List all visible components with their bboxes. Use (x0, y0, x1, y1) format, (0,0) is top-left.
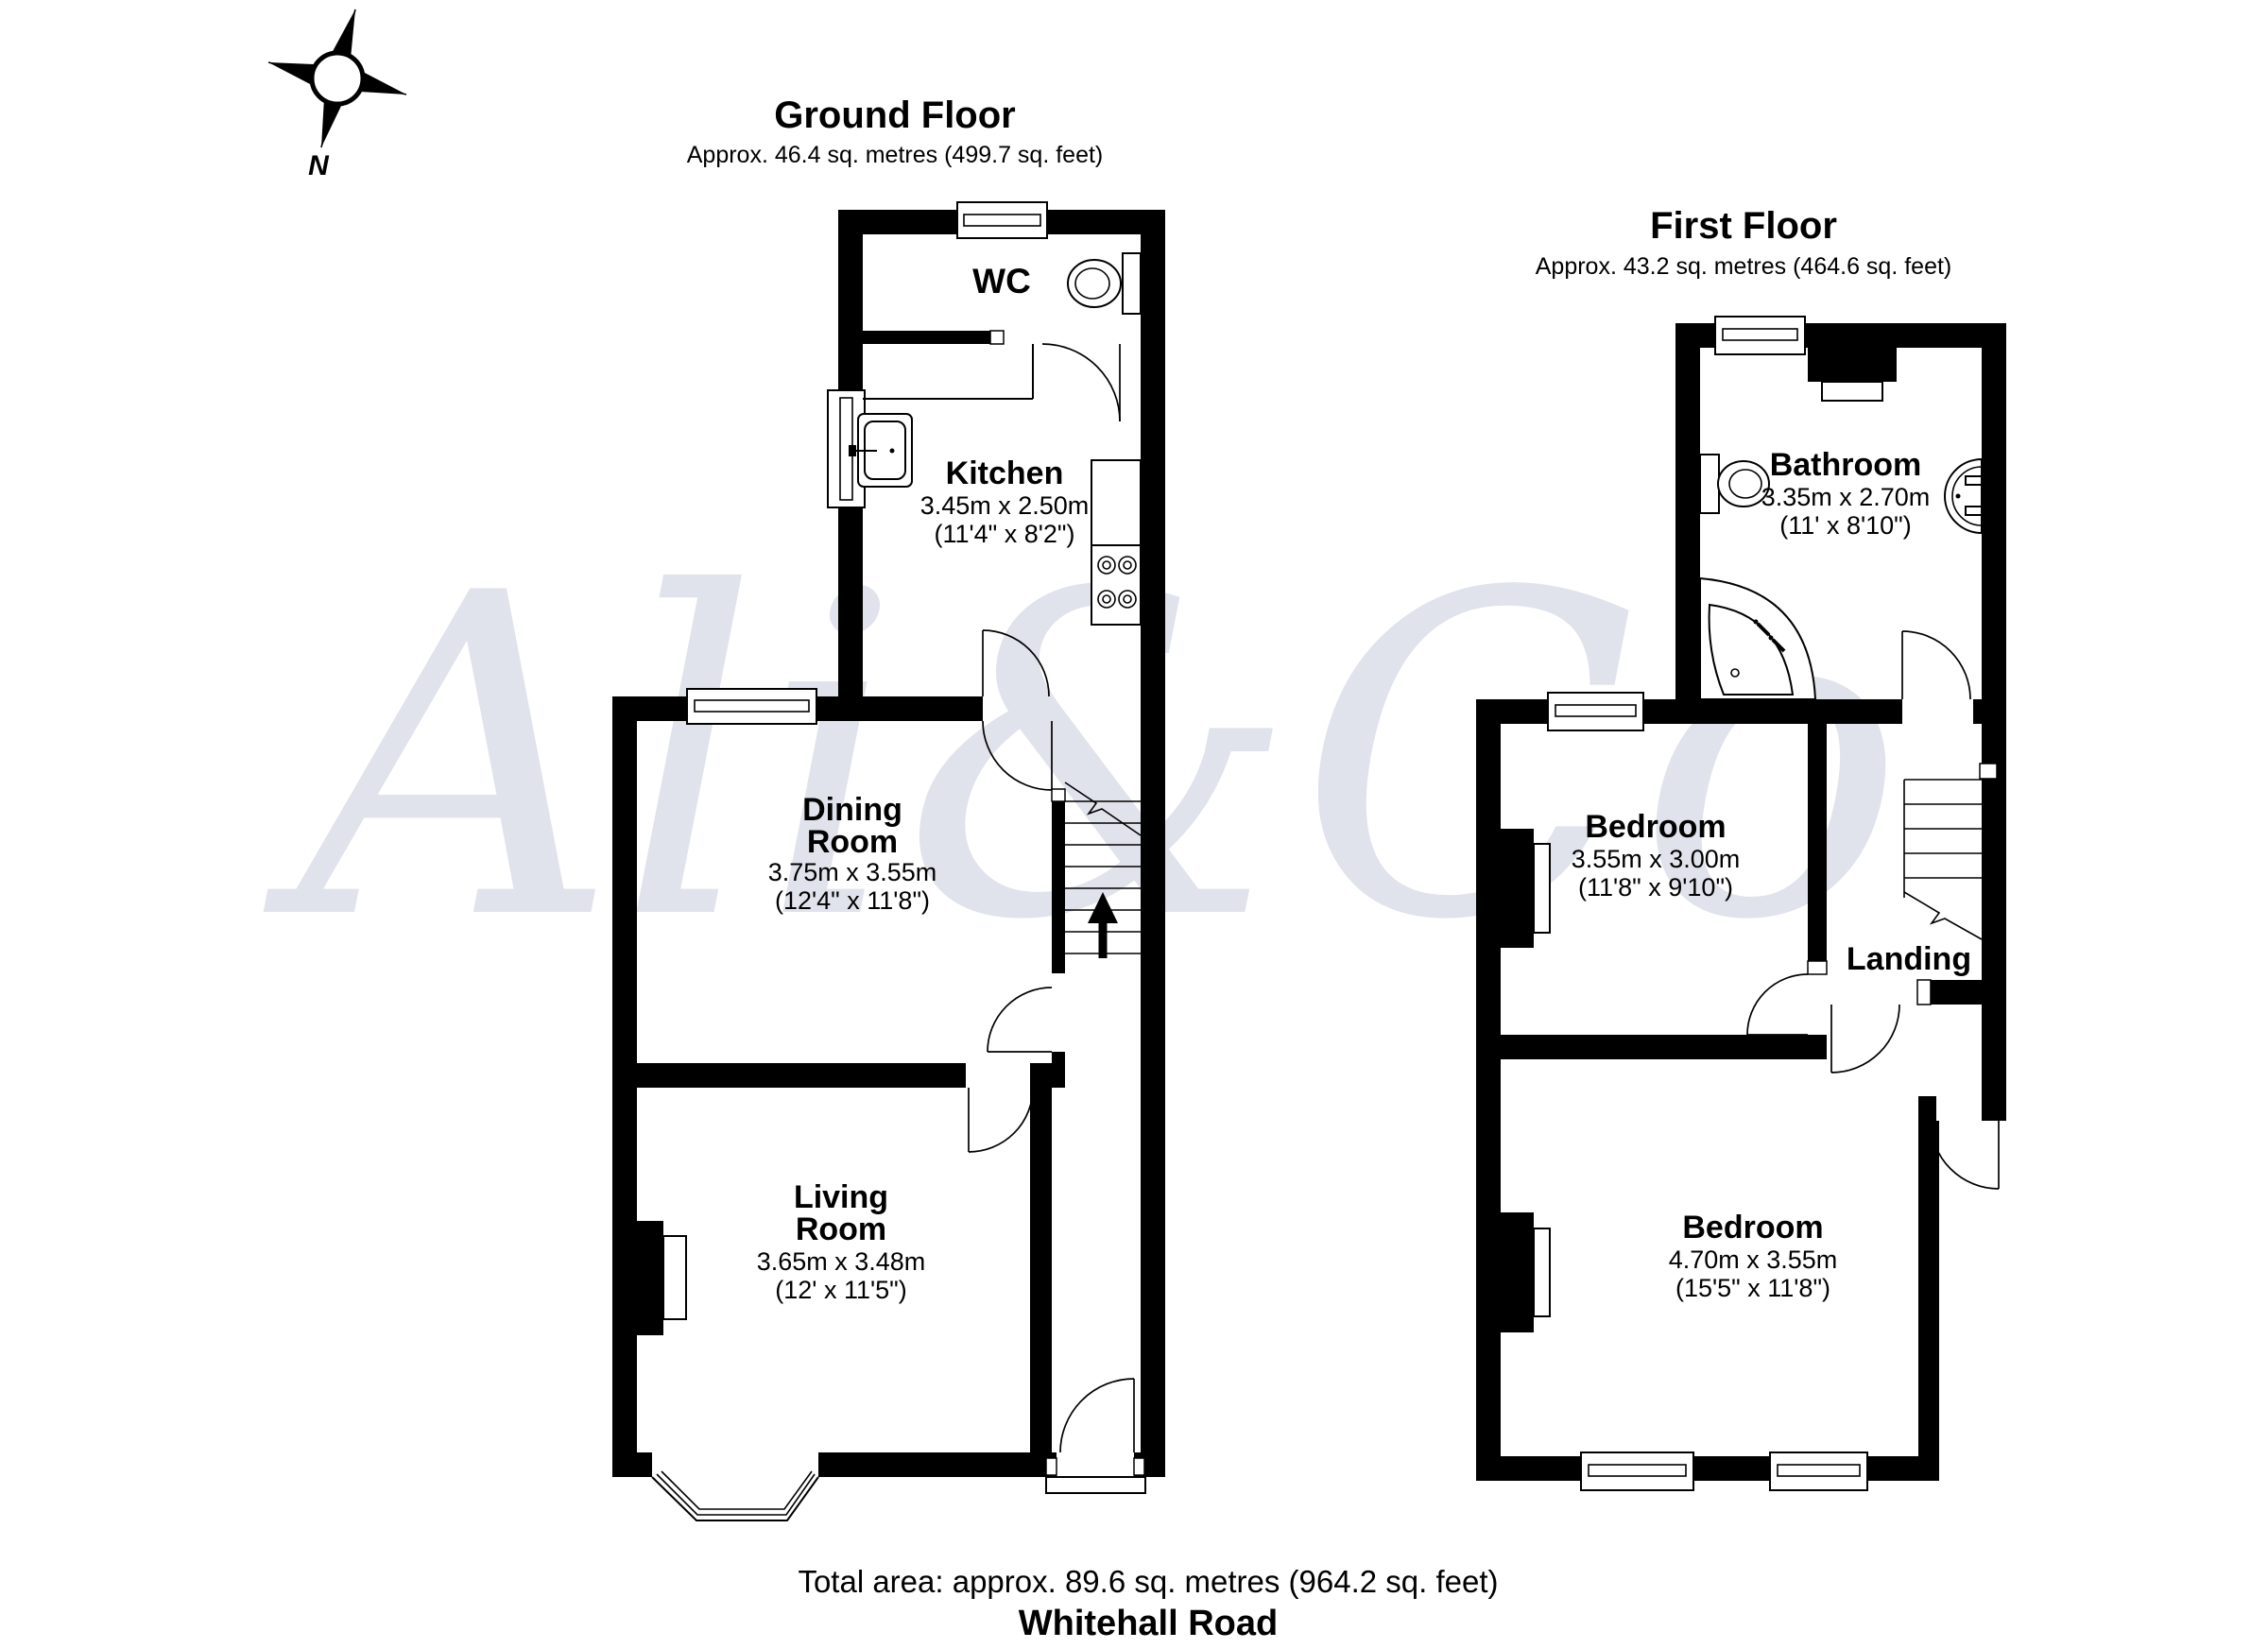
landing-cupboard-door (1931, 1121, 1999, 1189)
wc-toilet (1068, 253, 1141, 314)
watermark-text: Ali&Co (263, 500, 1905, 1017)
bathroom-window (1715, 317, 1805, 354)
bedroom2-fireplace (1534, 1228, 1550, 1316)
floorplan-page: Ali&Co N Ground Floor Approx. 46.4 sq. m… (0, 0, 2268, 1649)
bedroom2-size-imperial: (15'5" x 11'8") (1675, 1274, 1830, 1302)
living-room-fireplace (663, 1236, 686, 1319)
bedroom1-fireplace (1534, 844, 1550, 933)
kitchen-label: Kitchen (946, 455, 1064, 491)
dining-room-label-1: Dining (802, 792, 902, 828)
bedroom1-size-metric: 3.55m x 3.00m (1572, 845, 1741, 873)
dining-room-size-metric: 3.75m x 3.55m (768, 858, 937, 886)
bedroom2-window-left (1581, 1452, 1693, 1490)
first-floor-title: First Floor (1650, 205, 1837, 247)
kitchen-size-imperial: (11'4" x 8'2") (934, 520, 1074, 548)
bedroom2-size-metric: 4.70m x 3.55m (1669, 1245, 1838, 1274)
dining-room-size-imperial: (12'4" x 11'8") (775, 886, 930, 915)
bedroom2-window-right (1770, 1452, 1867, 1490)
kitchen-sink (849, 414, 912, 487)
wc-label: WC (972, 262, 1031, 301)
first-floor-area: Approx. 43.2 sq. metres (464.6 sq. feet) (1536, 253, 1952, 280)
landing-label: Landing (1847, 941, 1971, 977)
living-room-label-1: Living (794, 1179, 888, 1215)
back-door (957, 202, 1047, 238)
bathroom-size-metric: 3.35m x 2.70m (1761, 483, 1931, 511)
bathroom-sink (1945, 459, 1982, 533)
bedroom1-label: Bedroom (1585, 809, 1726, 845)
total-area-text: Total area: approx. 89.6 sq. metres (964… (798, 1564, 1498, 1599)
dining-room-window (687, 689, 816, 724)
bedroom2-label: Bedroom (1682, 1210, 1823, 1245)
bay-window (652, 1471, 818, 1520)
floorplan-canvas: Ali&Co N Ground Floor Approx. 46.4 sq. m… (0, 0, 2268, 1649)
compass-rose-icon: N (268, 9, 406, 181)
living-room-size-metric: 3.65m x 3.48m (757, 1247, 926, 1276)
front-door (1046, 1379, 1145, 1493)
bedroom1-size-imperial: (11'8" x 9'10") (1578, 873, 1733, 902)
street-name: Whitehall Road (1019, 1604, 1278, 1643)
bedroom1-window (1548, 693, 1643, 730)
kitchen-size-metric: 3.45m x 2.50m (920, 491, 1090, 520)
dining-room-label-2: Room (807, 824, 898, 860)
ground-floor-area: Approx. 46.4 sq. metres (499.7 sq. feet) (687, 142, 1104, 168)
bathroom-door (1902, 631, 1970, 699)
first-floor-staircase (1904, 780, 1982, 939)
bathroom-size-imperial: (11' x 8'10") (1779, 511, 1911, 540)
stove (1091, 545, 1141, 625)
bathroom-label: Bathroom (1770, 447, 1922, 483)
ground-floor-title: Ground Floor (774, 94, 1016, 136)
living-room-door (969, 1088, 1033, 1152)
compass-north-label: N (308, 150, 330, 181)
living-room-label-2: Room (796, 1211, 886, 1247)
bathroom-chimney-recess (1822, 382, 1882, 401)
living-room-size-imperial: (12' x 11'5") (775, 1276, 906, 1304)
wc-door (1042, 344, 1120, 421)
